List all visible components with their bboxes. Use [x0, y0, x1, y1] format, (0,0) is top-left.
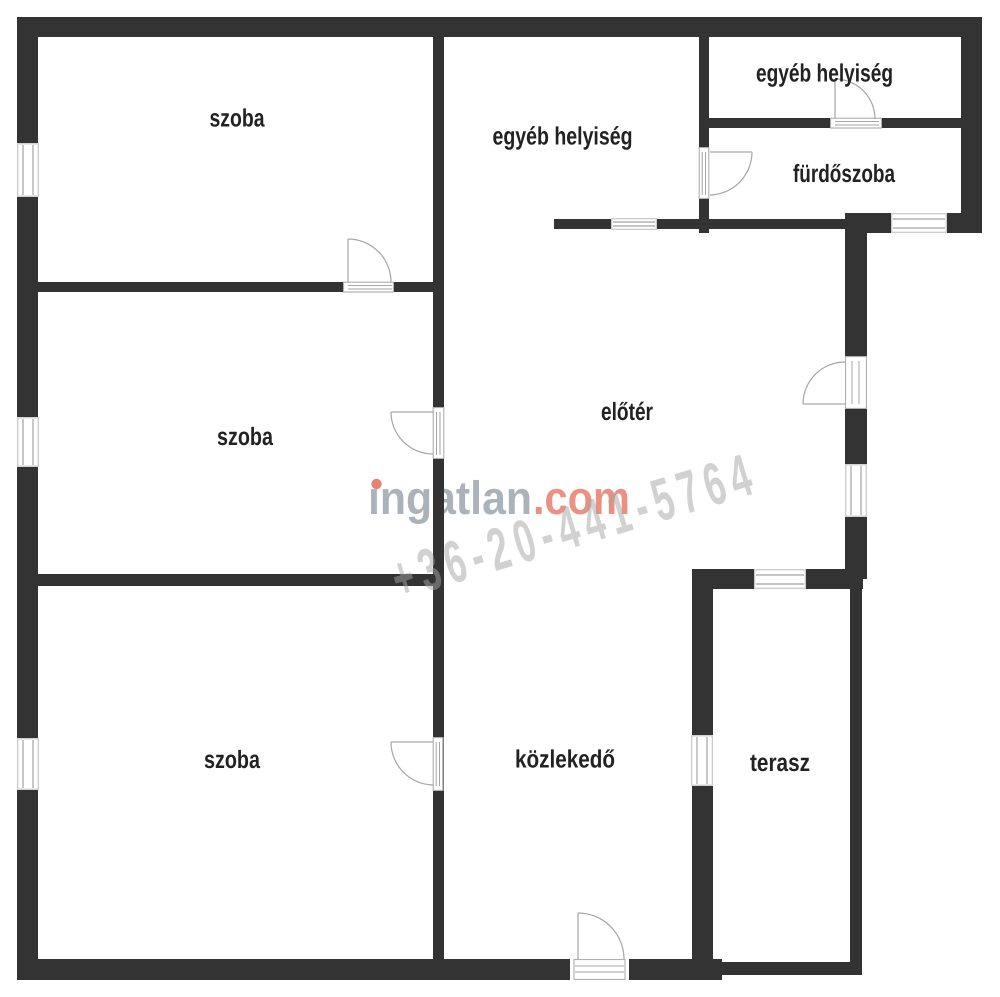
svg-text:közlekedő: közlekedő	[515, 746, 615, 774]
svg-text:egyéb helyiség: egyéb helyiség	[493, 123, 633, 151]
svg-text:szoba: szoba	[204, 746, 261, 774]
svg-text:terasz: terasz	[750, 749, 810, 777]
svg-text:szoba: szoba	[217, 423, 274, 451]
svg-text:előtér: előtér	[601, 398, 653, 426]
svg-text:szoba: szoba	[210, 105, 266, 133]
svg-text:egyéb helyiség: egyéb helyiség	[756, 60, 893, 88]
svg-text:fürdőszoba: fürdőszoba	[793, 160, 896, 188]
